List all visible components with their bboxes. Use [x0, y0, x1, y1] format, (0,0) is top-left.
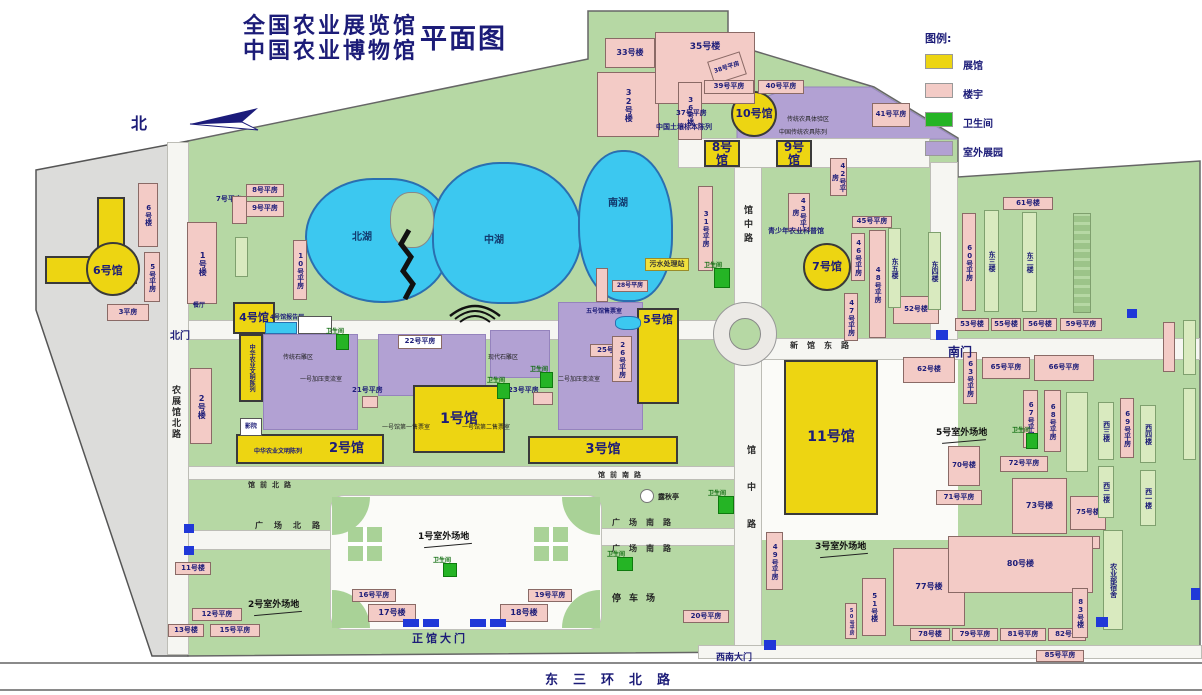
hall-11: 11号馆 [784, 360, 878, 515]
toilet-label: 卫生间 [433, 555, 451, 564]
building-15ph: 15号平房 [210, 624, 260, 637]
building-53lou: 53号楼 [955, 318, 989, 331]
hall-9: 9号馆 [776, 140, 812, 167]
building-39ph: 39号平房 [704, 80, 754, 94]
legend-item: 室外展园 [925, 141, 1125, 160]
area-tools-experience: 传统农具体验区 [787, 114, 829, 123]
toilet [540, 372, 553, 388]
building-dong2: 东二楼 [1022, 212, 1037, 312]
building [1183, 320, 1196, 375]
gate-marker [184, 546, 194, 555]
gate-marker [936, 330, 948, 340]
road-label-guangchangnanlu2: 广场南路 [612, 543, 680, 554]
building-12ph: 12号平房 [192, 608, 242, 621]
area-soil-display: 中国土壤标本陈列 [656, 122, 712, 132]
roundabout-center [729, 318, 761, 350]
map-canvas: { "title": {"line1": "全国农业展览馆", "line2":… [0, 0, 1202, 695]
area-civilization-h2: 中华农业文明陈列 [254, 446, 302, 455]
hall-6-label: 6号馆 [93, 262, 123, 278]
ticket1-label: 一号馆第一售票室 [382, 422, 430, 431]
page-title-line2: 中国农业博物馆 [243, 33, 418, 65]
gate-marker [490, 619, 506, 627]
ticket2-label: 一号馆第二售票室 [462, 422, 510, 431]
road-label-dongsanhuan: 东三环北路 [545, 669, 685, 688]
gate-marker [1096, 617, 1108, 627]
building-26ph: 26号平房 [612, 336, 632, 382]
building-79ph: 79号平房 [952, 628, 998, 641]
legend-swatch-building [925, 83, 953, 98]
area-youth-science: 青少年农业科普馆 [768, 226, 824, 236]
area-pump2: 二号加压变流室 [558, 374, 600, 383]
building-56lou: 56号楼 [1023, 318, 1057, 331]
hall-8: 8号馆 [704, 140, 740, 167]
toilet [1026, 433, 1038, 449]
toilet [714, 268, 730, 288]
gate-north-label: 北门 [170, 327, 190, 342]
building-71ph: 71号平房 [936, 490, 982, 505]
toilet-label: 卫生间 [326, 326, 344, 335]
building-80lou: 80号楼 [948, 536, 1093, 593]
building-21ph-label: 21号平房 [352, 385, 383, 395]
building-dong3: 东三楼 [984, 210, 999, 312]
pool [265, 322, 297, 334]
toilet-label: 卫生间 [487, 375, 505, 384]
lake-label: 北湖 [352, 228, 372, 243]
hall-3: 3号馆 [528, 436, 678, 464]
page-title-type: 平面图 [420, 17, 507, 56]
building-60ph: 60号平房 [962, 213, 976, 311]
toilet [497, 383, 510, 399]
legend-swatch-toilet [925, 112, 953, 127]
building-9ph: 9号平房 [246, 201, 284, 217]
building-11lou: 11号楼 [175, 562, 211, 575]
building [235, 237, 248, 277]
building-xi1: 西一楼 [1140, 470, 1156, 526]
tree-row [1073, 213, 1091, 313]
toilet [336, 334, 349, 350]
toilet-label: 卫生间 [530, 364, 548, 373]
legend: 图例: 展馆 楼宇 卫生间 室外展园 [925, 30, 1125, 160]
building-18lou: 18号楼 [500, 604, 548, 622]
building-22ph: 22号平房 [398, 335, 442, 349]
gate-marker [403, 619, 419, 627]
area-stone-traditional: 传统石雕区 [283, 352, 313, 361]
toilet-label: 卫生间 [708, 488, 726, 497]
building-37ph-label: 37号平房 [676, 108, 707, 118]
road-label-nongzhanguanbeilu: 农展馆北路 [169, 385, 182, 485]
hall-1: 1号馆 [413, 385, 505, 453]
building-62lou: 62号楼 [903, 357, 955, 383]
ground-2-label: 2号室外场地 [248, 597, 299, 610]
building-85ph: 85号平房 [1036, 650, 1084, 662]
building-8ph: 8号平房 [246, 184, 284, 197]
building-81ph: 81号平房 [1000, 628, 1046, 641]
gate-south-label: 南门 [948, 343, 972, 360]
building-46ph: 46号平房 [851, 233, 865, 281]
road-label-xinguandonglu: 新馆东路 [790, 340, 858, 351]
gate-main-label: 正馆大门 [412, 630, 468, 646]
building-65ph: 65号平房 [982, 357, 1030, 379]
north-arrow-icon [190, 108, 258, 124]
legend-label: 室外展园 [963, 148, 1003, 159]
road-label-guangchangbeilu: 广场北路 [255, 520, 331, 531]
gate-marker [184, 524, 194, 533]
building-20ph: 20号平房 [683, 610, 729, 623]
gate-southwest-label: 西南大门 [716, 650, 752, 663]
road-guangchang-beilu [188, 530, 333, 550]
building-13lou: 13号楼 [168, 624, 204, 637]
building-dong5: 东五楼 [888, 228, 901, 308]
building-40ph: 40号平房 [758, 80, 804, 94]
road-label-guanzhonglu-lower: 馆中路 [744, 445, 757, 630]
building-47ph: 47号平房 [844, 293, 858, 341]
building-3ph: 3平房 [107, 304, 149, 321]
gate-marker [764, 640, 776, 650]
legend-swatch-hall [925, 54, 953, 69]
building-72ph: 72号平房 [1000, 456, 1048, 472]
building-51lou: 51号楼 [862, 578, 886, 636]
building-32lou: 32号楼 [597, 72, 659, 137]
legend-label: 楼宇 [963, 90, 983, 101]
building-23ph [533, 392, 553, 405]
building-42ph: 42号平房 [830, 158, 847, 196]
pool [615, 316, 641, 330]
legend-label: 卫生间 [963, 119, 993, 130]
area-stone-modern: 现代石雕区 [488, 352, 518, 361]
moa-dorm: 农业部宿舍 [1103, 530, 1123, 630]
building-69ph: 69号平房 [1120, 398, 1134, 458]
building-33lou: 33号楼 [605, 38, 655, 68]
building-6lou: 6号楼 [138, 183, 158, 247]
road-label-guanqianbeilu: 馆前北路 [248, 480, 296, 490]
sewage-station: 污水处理站 [645, 258, 689, 271]
road-label-guanzhonglu-upper: 馆中路 [741, 205, 754, 275]
building-73lou: 73号楼 [1012, 478, 1067, 534]
building-50ph: 50号平房 [845, 603, 857, 639]
legend-label: 展馆 [963, 61, 983, 72]
building [1183, 388, 1196, 460]
cinema: 影院 [240, 418, 262, 436]
building-61lou: 61号楼 [1003, 197, 1053, 210]
building-55lou: 55号楼 [991, 318, 1021, 331]
ground-1-label: 1号室外场地 [418, 529, 469, 542]
building [1066, 392, 1088, 472]
building-16ph: 16号平房 [352, 589, 396, 602]
legend-heading: 图例: [925, 30, 1125, 46]
gate-marker [470, 619, 486, 627]
legend-swatch-garden [925, 141, 953, 156]
building-dong4: 东四楼 [928, 232, 941, 310]
legend-item: 展馆 [925, 54, 1125, 73]
building-70lou: 70号楼 [948, 446, 980, 486]
road-label-guanqiannanlu: 馆前南路 [598, 470, 646, 480]
area-tools-display: 中国传统农具陈列 [779, 127, 827, 136]
toilet [443, 563, 457, 577]
hall-5: 5号馆 [637, 308, 679, 404]
gate-marker [1127, 309, 1137, 318]
gate-marker [1191, 588, 1200, 600]
hall-7: 7号馆 [803, 243, 851, 291]
canteen-label: 餐厅 [193, 300, 205, 309]
road-guanqian [188, 466, 735, 480]
building-xi2: 西二楼 [1098, 466, 1114, 518]
building-19ph: 19号平房 [528, 589, 572, 602]
building-83lou: 83号楼 [1072, 588, 1088, 638]
building-68ph: 68号平房 [1044, 390, 1061, 452]
legend-item: 楼宇 [925, 83, 1125, 102]
toilet [718, 496, 734, 514]
building-7ph [232, 196, 247, 224]
building [596, 268, 608, 302]
gate-marker [423, 619, 439, 627]
pavilion-label: 露秋亭 [658, 492, 679, 502]
toilet-label: 卫生间 [704, 260, 722, 269]
compass-north-label: 北 [131, 110, 147, 134]
building-41ph: 41号平房 [872, 103, 910, 127]
building [1163, 322, 1175, 372]
building-49ph: 49号平房 [766, 532, 783, 590]
building-48ph: 48号平房 [869, 230, 886, 338]
building-31ph: 31号平房 [698, 186, 713, 271]
building-xi4: 西四楼 [1140, 405, 1156, 463]
building-66ph: 66号平房 [1034, 355, 1094, 381]
ticket-hall5-label: 五号馆售票室 [586, 306, 622, 315]
building-10ph: 10号平房 [293, 240, 307, 300]
building-59ph: 59号平房 [1060, 318, 1102, 331]
toilet [617, 557, 633, 571]
building-5ph: 5号平房 [144, 252, 160, 302]
parking-label: 停车场 [612, 591, 663, 604]
hall-4-wing: 中华农业文明陈列 [239, 334, 263, 402]
building-21ph [362, 396, 378, 408]
building-78lou: 78号楼 [910, 628, 950, 641]
ground-5-label: 5号室外场地 [936, 425, 987, 438]
tree-cluster [534, 527, 568, 561]
building-28ph: 28号平房 [612, 280, 648, 292]
toilet-label: 卫生间 [1012, 425, 1030, 434]
pavilion-circle [640, 489, 654, 503]
lake-label: 南湖 [608, 194, 628, 209]
building-45ph: 45号平房 [852, 216, 892, 228]
road-label-guangchangnanlu1: 广场南路 [612, 517, 680, 528]
tree-cluster [348, 527, 382, 561]
legend-item: 卫生间 [925, 112, 1125, 131]
ground-3-label: 3号室外场地 [815, 539, 866, 552]
building-2lou: 2号楼 [190, 368, 212, 444]
building-1lou: 1号楼 [187, 222, 217, 304]
area-pump1: 一号加压变流室 [300, 374, 342, 383]
building-xi3: 西三楼 [1098, 402, 1114, 460]
